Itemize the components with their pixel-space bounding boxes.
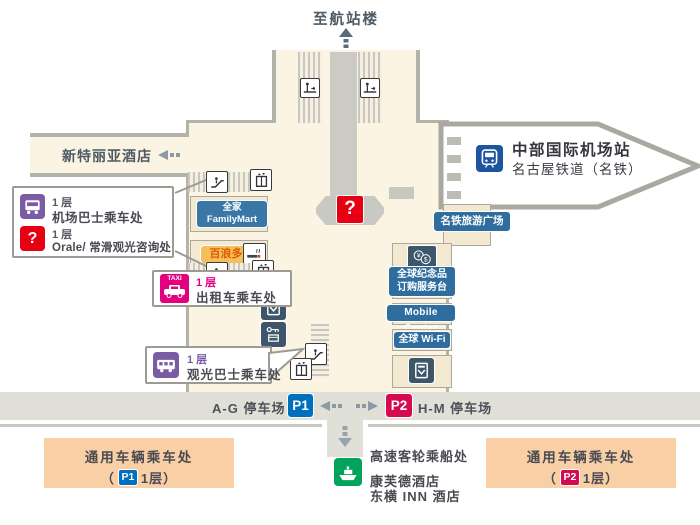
wing-wall-bottom — [30, 173, 188, 177]
floor-post: 1层） — [141, 468, 177, 487]
station-floor-map: 中部国际机场站 名古屋铁道（名铁） 名铁旅游广场 全家 FamilyMart 百… — [0, 0, 700, 525]
parking-ag-label: A-G 停车场 — [212, 398, 284, 417]
ticket-gate-dash — [447, 155, 461, 163]
moving-walkway-icon — [360, 78, 380, 98]
global-wifi-label: 全球 Wi-Fi — [394, 332, 450, 348]
sightseeing-bus-name: 观光巴士乘车处 — [187, 364, 282, 383]
p2-badge-small: P2 — [561, 470, 579, 485]
arrow-up-icon — [338, 28, 354, 50]
hotel-toyoko-label: 东横 INN 酒店 — [370, 486, 461, 505]
svg-text:¥: ¥ — [417, 253, 421, 260]
escalator-icon — [206, 171, 228, 193]
ticket-gate-dash — [447, 137, 461, 145]
arrow-right-icon — [354, 400, 380, 412]
mobile-center-label: Mobile Center — [387, 305, 455, 321]
parking-hm-label: H-M 停车场 — [418, 398, 492, 417]
souvenir-line1: 全球纪念品 — [389, 268, 455, 281]
souvenir-line2: 订购服务台 — [389, 281, 455, 294]
orale-name: Orale/ 常滑观光咨询处 — [52, 239, 171, 255]
general-vehicle-area-p1: 通用车辆乘车处 （ P1 1层） — [44, 438, 234, 488]
station-name: 中部国际机场站 — [512, 138, 631, 160]
station-operator: 名古屋铁道（名铁） — [512, 158, 643, 178]
general-vehicle-label: 通用车辆乘车处 — [44, 446, 234, 466]
central-walk-strip — [330, 52, 357, 197]
arrow-down-icon — [337, 424, 353, 452]
atm-icon — [409, 358, 434, 383]
p2-badge: P2 — [386, 394, 412, 417]
p1-badge: P1 — [288, 394, 313, 417]
floor-pre: （ — [543, 468, 557, 487]
ferry-label: 高速客轮乘船处 — [370, 446, 468, 465]
train-icon — [476, 145, 503, 172]
taxi-sign: TAXI — [160, 274, 189, 283]
arrow-left-icon — [156, 149, 182, 161]
centrair-hotel-label: 新特丽亚酒店 — [62, 146, 152, 166]
taxi-icon: TAXI — [160, 274, 189, 303]
to-terminal-label: 至航站楼 — [296, 8, 396, 29]
main-road — [0, 392, 700, 420]
familymart-label: 全家 FamilyMart — [197, 201, 267, 227]
p1-badge-small: P1 — [119, 470, 137, 485]
floor-post: 1层） — [583, 468, 619, 487]
road-edge-left — [0, 424, 322, 427]
ticket-gate-dash — [447, 173, 461, 181]
floor-pre: （ — [101, 468, 115, 487]
bus-side-icon — [153, 352, 179, 378]
familymart-line1: 全家 — [197, 202, 267, 214]
question-icon: ? — [20, 226, 45, 251]
souvenir-counter-label: 全球纪念品 订购服务台 — [389, 267, 455, 296]
meitetsu-travel-plaza-label: 名铁旅游广场 — [434, 212, 510, 231]
elevator-icon — [250, 169, 272, 191]
corridor-wall-right — [416, 50, 420, 123]
general-vehicle-label: 通用车辆乘车处 — [486, 446, 676, 466]
general-vehicle-area-p2: 通用车辆乘车处 （ P2 1层） — [486, 438, 676, 488]
bus-icon — [20, 194, 45, 219]
familymart-line2: FamilyMart — [197, 214, 267, 226]
taxi-name: 出租车乘车处 — [196, 287, 277, 306]
airport-bus-name: 机场巴士乘车处 — [52, 207, 143, 226]
currency-exchange-icon: ¥$ — [408, 246, 436, 269]
information-icon: ? — [337, 196, 363, 223]
arrow-left-icon — [318, 400, 344, 412]
ferry-icon — [334, 458, 362, 486]
moving-walkway-icon — [300, 78, 320, 98]
ticket-gate-dash — [447, 191, 461, 199]
corridor-wall-left — [272, 50, 276, 123]
svg-text:$: $ — [424, 256, 428, 263]
station-entrance-dash — [389, 187, 414, 199]
road-edge-right — [368, 424, 700, 427]
